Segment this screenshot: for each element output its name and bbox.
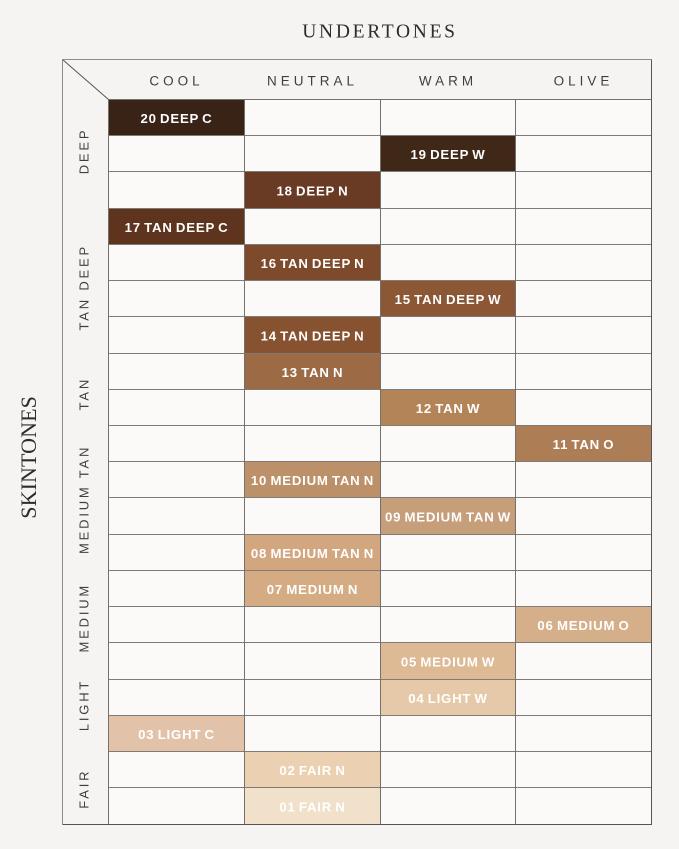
svg-text:OLIVE: OLIVE <box>554 74 614 89</box>
svg-text:DEEP: DEEP <box>77 128 92 175</box>
svg-text:04 LIGHT W: 04 LIGHT W <box>408 691 488 706</box>
svg-text:NEUTRAL: NEUTRAL <box>267 74 358 89</box>
svg-text:03 LIGHT C: 03 LIGHT C <box>138 727 215 742</box>
svg-text:MEDIUM: MEDIUM <box>77 583 92 653</box>
svg-text:09 MEDIUM TAN W: 09 MEDIUM TAN W <box>385 510 511 525</box>
svg-text:10 MEDIUM TAN N: 10 MEDIUM TAN N <box>251 473 374 488</box>
svg-text:LIGHT: LIGHT <box>77 679 92 731</box>
svg-text:18 DEEP N: 18 DEEP N <box>277 184 349 199</box>
svg-text:02 FAIR N: 02 FAIR N <box>279 763 345 778</box>
svg-text:MEDIUM TAN: MEDIUM TAN <box>77 445 92 554</box>
svg-text:FAIR: FAIR <box>77 769 92 809</box>
svg-text:14 TAN DEEP N: 14 TAN DEEP N <box>261 329 365 344</box>
svg-text:20 DEEP C: 20 DEEP C <box>141 111 213 126</box>
svg-text:05 MEDIUM W: 05 MEDIUM W <box>401 655 495 670</box>
svg-text:06 MEDIUM O: 06 MEDIUM O <box>537 618 629 633</box>
svg-text:15 TAN DEEP W: 15 TAN DEEP W <box>395 292 502 307</box>
svg-text:13 TAN N: 13 TAN N <box>282 365 344 380</box>
svg-text:07 MEDIUM N: 07 MEDIUM N <box>267 582 358 597</box>
svg-text:16 TAN DEEP N: 16 TAN DEEP N <box>261 256 365 271</box>
svg-text:SKINTONES: SKINTONES <box>16 396 41 519</box>
svg-text:01 FAIR N: 01 FAIR N <box>279 800 345 815</box>
svg-text:12 TAN W: 12 TAN W <box>416 401 481 416</box>
svg-text:WARM: WARM <box>419 74 477 89</box>
svg-text:TAN: TAN <box>77 377 92 410</box>
svg-text:11 TAN O: 11 TAN O <box>553 437 615 452</box>
svg-text:TAN DEEP: TAN DEEP <box>77 244 92 330</box>
svg-text:08 MEDIUM TAN N: 08 MEDIUM TAN N <box>251 546 374 561</box>
svg-text:19 DEEP W: 19 DEEP W <box>411 147 486 162</box>
svg-text:UNDERTONES: UNDERTONES <box>302 22 457 43</box>
svg-text:17 TAN DEEP C: 17 TAN DEEP C <box>125 220 229 235</box>
svg-text:COOL: COOL <box>149 74 203 89</box>
